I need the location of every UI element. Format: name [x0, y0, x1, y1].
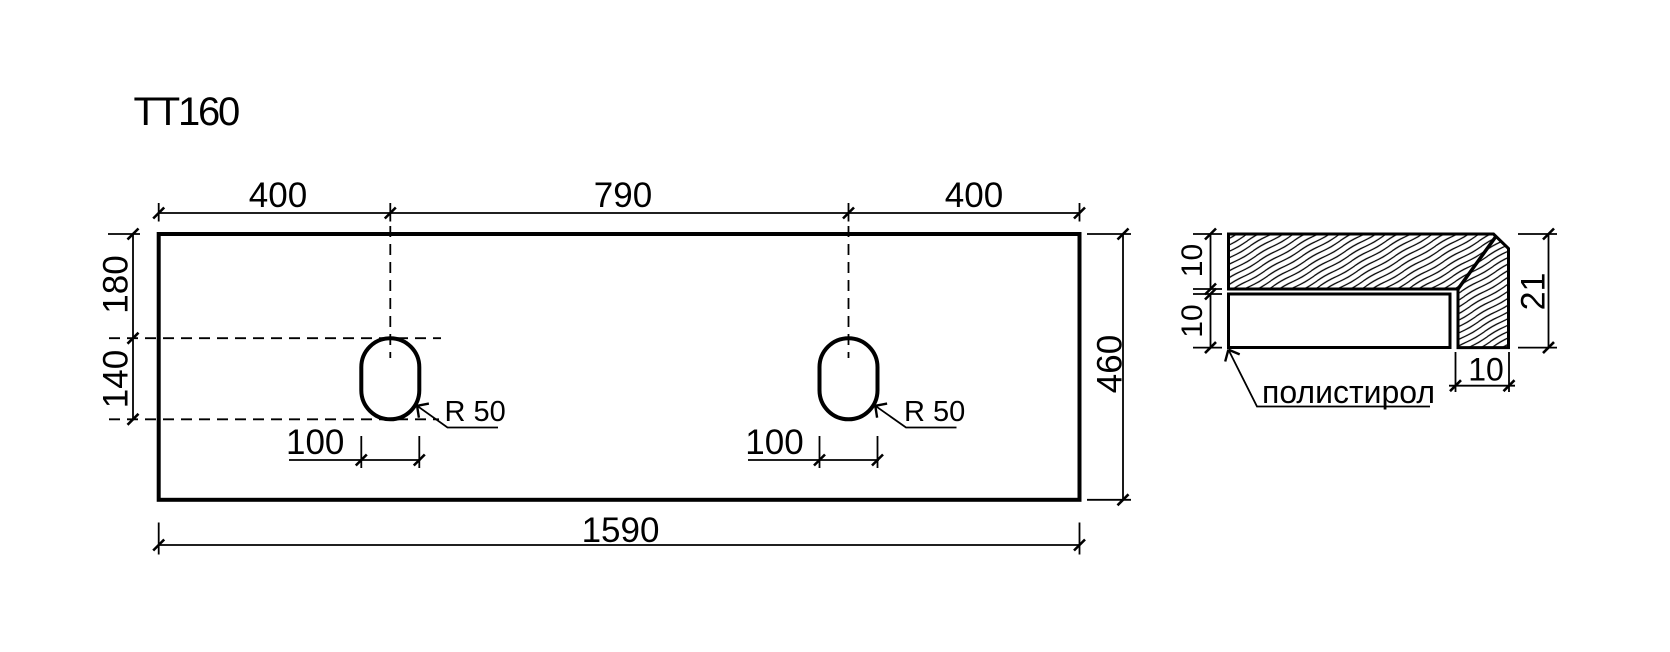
svg-text:10: 10: [1468, 352, 1504, 388]
svg-text:100: 100: [286, 423, 344, 462]
svg-text:10: 10: [1176, 304, 1209, 337]
svg-text:460: 460: [1091, 335, 1130, 393]
svg-text:180: 180: [97, 255, 136, 313]
svg-text:TT160: TT160: [134, 90, 240, 134]
svg-text:140: 140: [97, 350, 136, 408]
svg-text:400: 400: [945, 176, 1003, 215]
svg-text:1590: 1590: [582, 511, 660, 550]
svg-text:100: 100: [745, 423, 803, 462]
svg-text:полистирол: полистирол: [1262, 374, 1435, 410]
svg-text:400: 400: [249, 176, 307, 215]
svg-text:10: 10: [1176, 244, 1209, 277]
svg-text:R 50: R 50: [445, 396, 506, 428]
svg-text:R 50: R 50: [904, 396, 965, 428]
svg-text:21: 21: [1515, 273, 1553, 311]
svg-text:790: 790: [594, 176, 652, 215]
